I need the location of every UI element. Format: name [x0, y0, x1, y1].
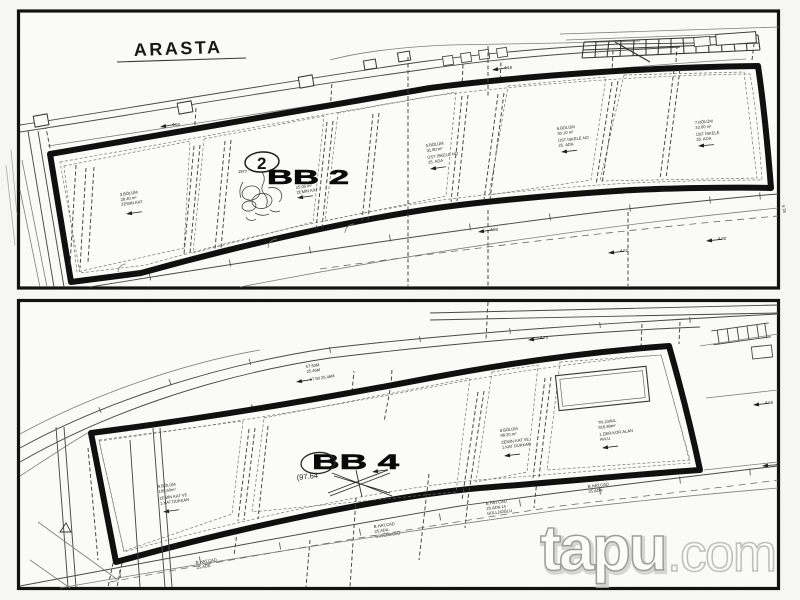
svg-text:4.62: 4.62 [620, 248, 629, 253]
svg-text:tapu: tapu [540, 512, 665, 584]
svg-text:.com: .com [667, 524, 775, 583]
svg-text:4.18: 4.18 [504, 65, 513, 70]
svg-text:4.66: 4.66 [765, 400, 774, 405]
svg-text:2: 2 [257, 154, 266, 173]
svg-text:4.80: 4.80 [490, 227, 499, 232]
svg-text:4.80: 4.80 [718, 236, 727, 241]
svg-text:4.70: 4.70 [540, 335, 549, 340]
svg-text:4.50: 4.50 [172, 122, 181, 127]
svg-text:1977: 1977 [238, 169, 248, 174]
svg-text:ARASTA: ARASTA [133, 37, 222, 60]
